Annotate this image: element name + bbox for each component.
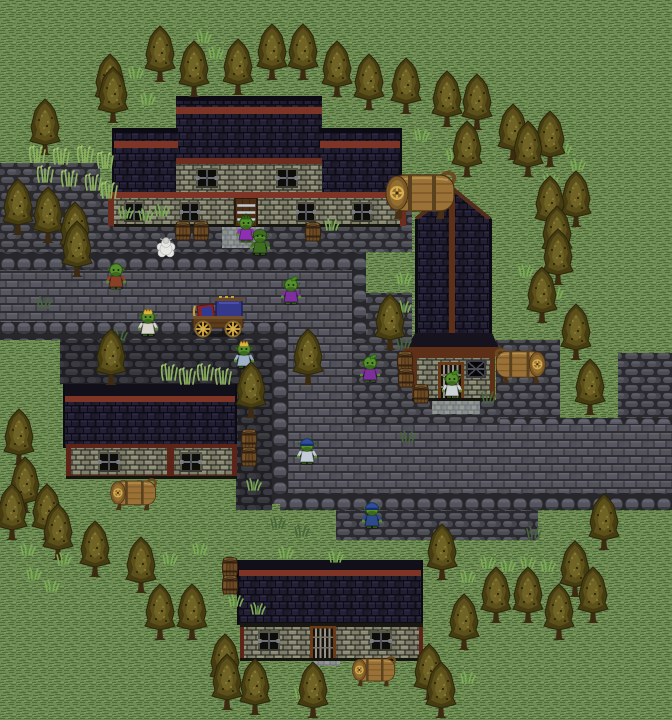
tall-house-east-part (449, 196, 455, 340)
tall-house-east-part (489, 219, 492, 333)
barrel[interactable] (222, 557, 238, 576)
terrain-bord (0, 252, 364, 270)
crown-hat (144, 309, 153, 315)
inn-north-win (276, 168, 298, 188)
house-south-win (370, 631, 392, 651)
inn-north-win (196, 168, 218, 188)
inn-north-win (180, 202, 200, 222)
inn-north-part (108, 196, 114, 226)
barrel[interactable] (241, 429, 257, 448)
house-west-part (71, 448, 232, 475)
tall-house-east (404, 188, 502, 401)
barrel[interactable] (175, 221, 191, 240)
house-south-part (240, 623, 244, 660)
inn-north-part (108, 192, 406, 198)
game-viewport[interactable] (0, 0, 672, 720)
inn-north-part (176, 107, 322, 114)
house-south (237, 560, 423, 661)
inn-north-part (112, 141, 178, 148)
terrain-rock (618, 353, 672, 423)
terrain-bord (272, 340, 288, 504)
house-south-doorV[interactable] (310, 626, 336, 659)
house-west-part (63, 402, 237, 448)
house-west-part (167, 444, 174, 478)
barrel[interactable] (305, 222, 321, 241)
inn-north-part (176, 158, 322, 164)
inn-north-part (320, 128, 402, 133)
terrain-brick (295, 424, 672, 493)
house-west-part (235, 384, 237, 448)
house-south-part (237, 570, 423, 576)
barrel[interactable] (397, 351, 413, 370)
house-west-part (63, 384, 65, 448)
house-south-part (421, 560, 423, 625)
inn-north-part (112, 128, 178, 198)
house-west-win (98, 452, 120, 472)
house-west-part (63, 396, 237, 402)
tall-house-east-part (404, 347, 502, 354)
barrel[interactable] (413, 384, 429, 403)
inn-north-win (352, 202, 372, 222)
barrel[interactable] (222, 575, 238, 594)
tall-house-east-winD (466, 360, 486, 378)
house-west (63, 384, 237, 479)
house-west-part (63, 384, 237, 398)
barrel[interactable] (193, 221, 209, 240)
tall-house-east-part (412, 354, 494, 358)
house-west-win (180, 452, 202, 472)
inn-north-part (320, 141, 402, 148)
crown-hat (240, 341, 249, 347)
barrel[interactable] (398, 368, 414, 387)
house-south-win (258, 631, 280, 651)
barrel[interactable] (241, 447, 257, 466)
game-map[interactable] (0, 0, 672, 720)
house-south-part (237, 576, 423, 625)
tall-house-east-part (415, 219, 418, 333)
inn-north-win (296, 202, 316, 222)
inn-north-part (112, 128, 178, 133)
mohawk-hat (242, 214, 251, 220)
